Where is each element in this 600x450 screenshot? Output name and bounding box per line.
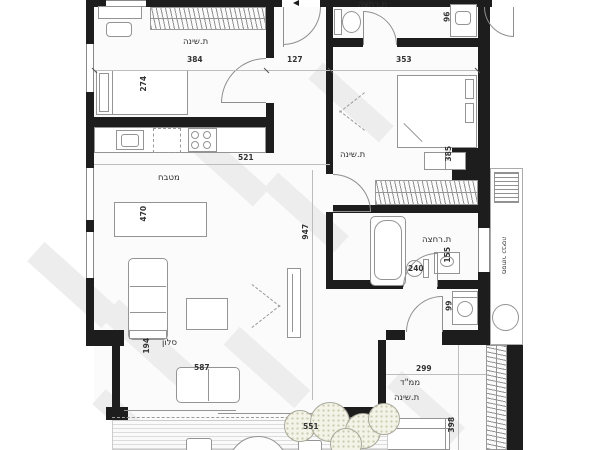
- wall-segment: [266, 0, 274, 58]
- door-leaf: [221, 102, 266, 103]
- wall-segment: [397, 38, 478, 47]
- closet-rail-line: [375, 192, 478, 193]
- wall-segment: [507, 330, 523, 450]
- room-label-living-room: סלון: [162, 339, 177, 348]
- door-leaf: [442, 296, 443, 332]
- wall-segment: [86, 0, 94, 44]
- wall-segment: [437, 280, 478, 289]
- toilet-bowl: [342, 11, 361, 33]
- door-leaf: [283, 7, 284, 47]
- dimension-line: [94, 164, 330, 165]
- dimension-label: 99: [445, 301, 453, 311]
- wall-segment: [106, 407, 128, 420]
- closet-rail-line: [496, 345, 497, 450]
- room-label-kitchen: מטבח: [158, 174, 180, 183]
- dimension-label: 947: [302, 224, 310, 240]
- window: [86, 232, 94, 278]
- desk-chair: [106, 22, 132, 37]
- bed-pillow: [465, 103, 474, 123]
- dishwasher: [153, 128, 181, 153]
- closet-rail-line: [150, 18, 266, 19]
- bathtub-inner: [374, 220, 402, 280]
- dimension-label: 127: [287, 56, 303, 64]
- wall-segment: [86, 278, 94, 330]
- dimension-label: 155: [444, 247, 452, 263]
- wall-segment: [326, 212, 333, 289]
- wall-segment: [86, 220, 94, 232]
- dimension-label: 353: [396, 56, 412, 64]
- room-label-bedroom: ת.שינה: [340, 151, 365, 160]
- washing-machine-panel-line: [452, 297, 478, 298]
- sofa-seam: [130, 286, 166, 287]
- room-label-bathroom: ת.רחצה: [358, 1, 387, 10]
- window: [86, 168, 94, 220]
- sofa-seam: [208, 369, 209, 401]
- sofa: [128, 258, 168, 340]
- wall-segment: [86, 92, 94, 168]
- tv-screen-line: [292, 274, 293, 332]
- dimension-label: 274: [140, 76, 148, 92]
- kitchen-sink-basin: [121, 134, 139, 147]
- wall-segment: [333, 38, 363, 47]
- bed-line: [445, 419, 446, 449]
- door-leaf: [333, 211, 371, 212]
- floor-plan-canvas: מסתור כביסה ת.שינה ת.רחצה ת.שינה מטבח סל…: [0, 0, 600, 450]
- desk: [98, 6, 142, 19]
- coffee-table: [186, 298, 228, 330]
- chair: [186, 438, 212, 450]
- ac-outdoor-unit: [494, 172, 519, 203]
- bed-line: [112, 71, 113, 114]
- dimension-label: 194: [143, 338, 151, 354]
- dimension-label: 521: [238, 154, 254, 162]
- dimension-label: 96: [443, 12, 451, 22]
- stove-burner: [191, 131, 199, 139]
- wall-segment: [94, 117, 266, 127]
- vanity-basin: [455, 11, 471, 25]
- wall-segment: [86, 330, 124, 346]
- wall-segment: [386, 330, 405, 340]
- dimension-line: [312, 170, 313, 400]
- stove-burner: [203, 131, 211, 139]
- room-label-bathroom: ת.רחצה: [422, 236, 451, 245]
- plant: [368, 403, 400, 435]
- wall-segment: [478, 180, 490, 228]
- room-label-bedroom: ת.שינה: [183, 38, 208, 47]
- dimension-line: [458, 345, 459, 450]
- door-leaf: [437, 253, 438, 287]
- dimension-label: 385: [445, 146, 453, 162]
- dimension-line: [386, 374, 486, 375]
- entrance-arrow-icon: [293, 0, 299, 6]
- bed-pillow: [465, 79, 474, 99]
- wall-segment: [326, 0, 333, 174]
- sliding-door-panel: [124, 410, 236, 411]
- door-leaf: [363, 11, 364, 45]
- dimension-label: 587: [194, 364, 210, 372]
- wall-segment: [266, 103, 274, 153]
- toilet-tank: [334, 9, 342, 35]
- tv-cabinet: [287, 268, 301, 338]
- stove-burner: [203, 141, 211, 149]
- dimension-label: 299: [416, 365, 432, 373]
- dimension-label: 240: [408, 265, 424, 273]
- kitchen-island: [114, 202, 207, 237]
- dimension-line: [94, 70, 478, 71]
- water-heater: [492, 304, 519, 331]
- wall-segment: [112, 346, 120, 412]
- sofa-seam: [130, 312, 166, 313]
- dimension-label: 470: [140, 206, 148, 222]
- room-label-safe-room-bedroom: ת.שינה: [394, 394, 419, 403]
- laundry-screen-label: מסתור כביסה: [501, 225, 508, 285]
- dimension-label: 398: [448, 417, 456, 433]
- window: [478, 228, 490, 272]
- door-leaf: [513, 7, 514, 37]
- stove-burner: [191, 141, 199, 149]
- room-label-safe-room: ממ"ד: [400, 379, 420, 388]
- dimension-label: 384: [187, 56, 203, 64]
- washing-machine-drum: [457, 301, 473, 317]
- wall-segment: [378, 340, 386, 412]
- bed-pillow: [99, 73, 109, 112]
- dimension-label: 551: [303, 423, 319, 431]
- wall-segment: [146, 0, 282, 7]
